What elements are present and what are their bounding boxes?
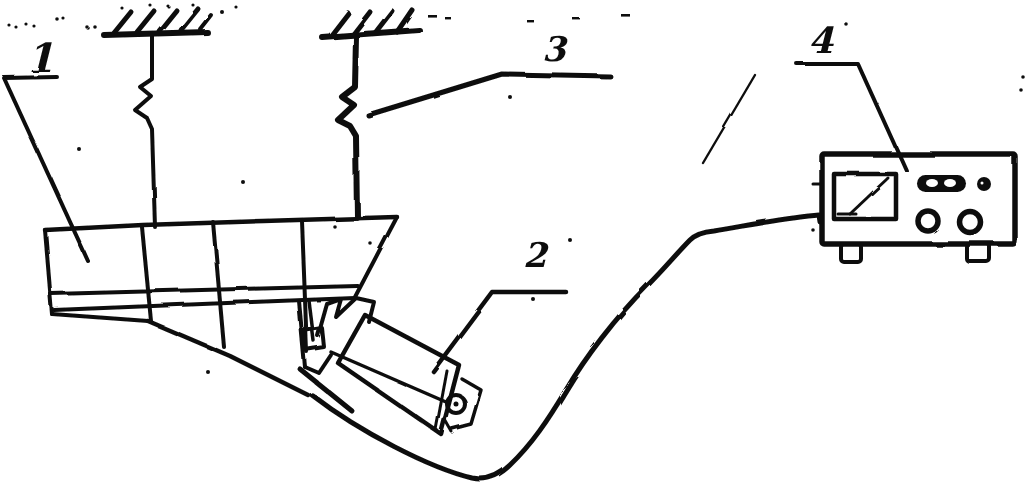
stray-line xyxy=(703,75,755,163)
label-2: 2 xyxy=(523,235,549,275)
knob-left xyxy=(918,211,938,231)
leader-line-2 xyxy=(433,292,566,371)
knob-right xyxy=(960,212,981,233)
signal-cable xyxy=(312,215,820,479)
slide-switch xyxy=(917,175,966,192)
meter-display xyxy=(834,174,896,219)
suspension-wire-left xyxy=(135,36,155,227)
indicator-light xyxy=(977,177,991,191)
label-3: 3 xyxy=(542,29,568,69)
diagram-svg: 1 2 3 4 xyxy=(0,0,1025,498)
label-4: 4 xyxy=(808,19,834,61)
schematic-figure: 1 2 3 4 xyxy=(0,0,1025,498)
meter-needle-icon xyxy=(850,178,888,214)
scan-speckles xyxy=(7,3,1024,374)
suspension-wire-right xyxy=(338,37,357,218)
transducer-cylinder xyxy=(331,315,481,434)
instrument-box xyxy=(813,154,1015,262)
ceiling-anchor-left xyxy=(104,9,211,35)
ceiling-anchor-right xyxy=(322,10,419,37)
leader-line-3 xyxy=(368,74,610,115)
label-1: 1 xyxy=(26,34,54,81)
